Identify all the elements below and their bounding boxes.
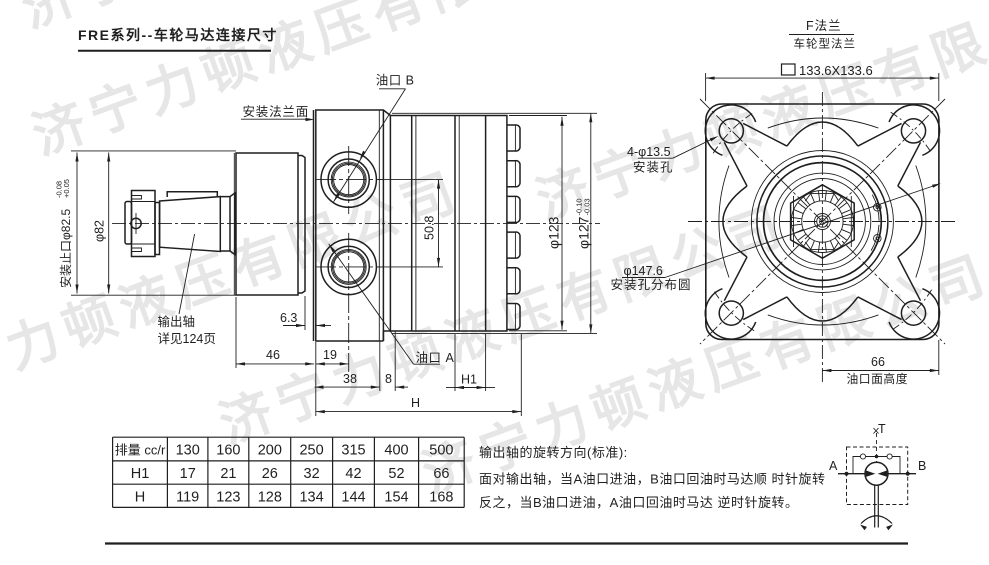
svg-text:F法兰: F法兰: [806, 19, 842, 33]
svg-text:52: 52: [388, 466, 404, 482]
svg-text:26: 26: [262, 466, 278, 482]
svg-text:A: A: [829, 459, 838, 473]
svg-text:H: H: [411, 396, 420, 410]
svg-text:安装法兰面: 安装法兰面: [243, 104, 310, 119]
svg-text:32: 32: [304, 466, 320, 482]
svg-text:38: 38: [343, 372, 357, 386]
svg-text:46: 46: [266, 348, 280, 362]
svg-text:输出轴的旋转方向(标准):: 输出轴的旋转方向(标准):: [479, 445, 628, 460]
svg-text:济宁力顿液压有限公司: 济宁力顿液压有限公司: [529, 0, 989, 231]
svg-text:200: 200: [258, 442, 282, 458]
svg-text:119: 119: [176, 489, 199, 505]
svg-text:输出轴: 输出轴: [158, 314, 196, 329]
svg-text:130: 130: [176, 442, 200, 458]
svg-text:φ127: φ127: [576, 216, 592, 249]
svg-text:油口 B: 油口 B: [376, 74, 415, 88]
svg-text:168: 168: [429, 489, 453, 505]
svg-text:φ82: φ82: [93, 220, 107, 242]
svg-text:42: 42: [345, 466, 361, 482]
svg-text:154: 154: [384, 489, 408, 505]
svg-text:车轮型法兰: 车轮型法兰: [794, 37, 857, 51]
svg-text:-0.10: -0.10: [575, 198, 584, 215]
svg-text:66: 66: [871, 355, 885, 369]
svg-text:φ123: φ123: [546, 216, 562, 249]
svg-text:50.8: 50.8: [423, 216, 437, 240]
svg-text:160: 160: [216, 442, 240, 458]
svg-text:-0.08: -0.08: [55, 181, 64, 198]
svg-text:T: T: [878, 422, 886, 436]
svg-text:油口 A: 油口 A: [416, 351, 455, 365]
svg-text:济宁力顿液压有限公司: 济宁力顿液压有限公司: [25, 0, 609, 166]
svg-text:128: 128: [258, 489, 282, 505]
svg-text:详见124页: 详见124页: [158, 331, 216, 346]
svg-text:H1: H1: [131, 466, 150, 482]
svg-text:19: 19: [323, 348, 337, 362]
svg-text:-0.03: -0.03: [583, 198, 592, 215]
svg-text:123: 123: [216, 489, 240, 505]
svg-text:油口面高度: 油口面高度: [847, 372, 909, 386]
svg-text:面对输出轴，当A油口进油，B油口回油时马达顺 时针旋转: 面对输出轴，当A油口进油，B油口回油时马达顺 时针旋转: [479, 472, 825, 487]
svg-text:66: 66: [433, 466, 449, 482]
svg-text:安装孔分布圆: 安装孔分布圆: [611, 277, 692, 292]
svg-text:6.3: 6.3: [280, 311, 297, 325]
svg-text:133.6X133.6: 133.6X133.6: [799, 63, 873, 78]
svg-text:4-φ13.5: 4-φ13.5: [627, 145, 671, 159]
svg-text:17: 17: [180, 466, 196, 482]
svg-text:21: 21: [220, 466, 236, 482]
svg-text:500: 500: [429, 442, 453, 458]
svg-text:φ147.6: φ147.6: [624, 264, 663, 278]
svg-text:144: 144: [341, 489, 365, 505]
svg-text:B: B: [918, 459, 926, 473]
svg-text:反之，当B油口进油，A油口回油时马达 逆时针旋转。: 反之，当B油口进油，A油口回油时马达 逆时针旋转。: [479, 495, 798, 510]
svg-text:安装止口φ82.5: 安装止口φ82.5: [58, 209, 73, 288]
svg-text:排量 cc/r: 排量 cc/r: [115, 442, 166, 457]
svg-text:400: 400: [384, 442, 408, 458]
svg-text:8: 8: [385, 372, 392, 386]
svg-text:H1: H1: [461, 373, 477, 387]
svg-text:FRE系列--车轮马达连接尺寸: FRE系列--车轮马达连接尺寸: [78, 27, 278, 43]
svg-text:安装孔: 安装孔: [633, 160, 674, 175]
svg-text:250: 250: [299, 442, 323, 458]
svg-text:134: 134: [299, 489, 323, 505]
svg-text:H: H: [135, 489, 145, 505]
svg-text:315: 315: [341, 442, 365, 458]
